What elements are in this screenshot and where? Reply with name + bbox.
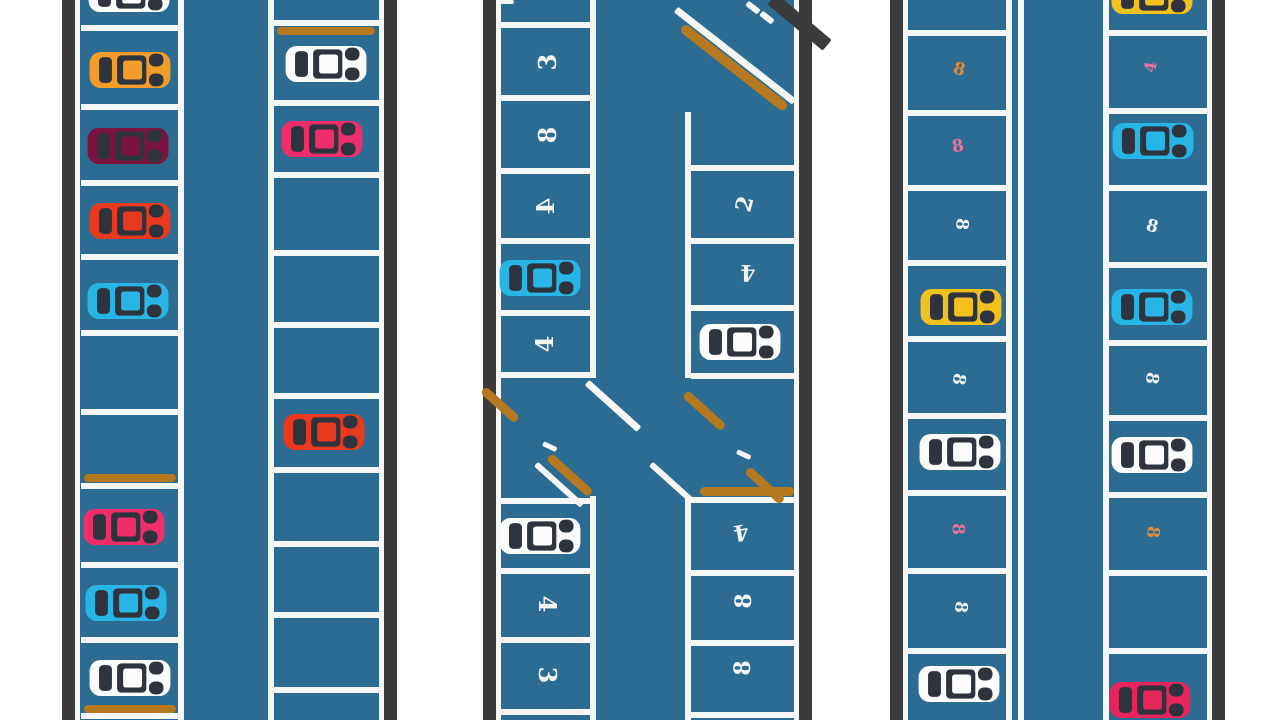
stall-number: 4 [533,336,557,353]
stall-divider-line [274,322,379,328]
curb-strip [84,705,176,713]
stall-divider-line [81,254,178,260]
stall-divider-line [908,336,1006,342]
stall-divider-line [274,250,379,256]
car-top-view [697,319,783,365]
stall-divider-line [1109,262,1207,268]
drive-lane-line [590,496,596,720]
stall-divider-line [274,100,379,106]
stall-divider-line [274,612,379,618]
stall-divider-line [908,260,1006,266]
car-top-view [497,513,583,559]
car-top-view [87,198,173,244]
stall-divider-line [501,95,590,101]
stall-divider-line [691,165,794,171]
stall-divider-line [501,709,590,715]
car-top-view [83,580,169,626]
stall-divider-line [1109,570,1207,576]
stall-number: 8 [949,523,966,535]
car-top-view [916,661,1002,707]
road-marking [500,0,514,4]
stall-divider-line [501,168,590,174]
stall-divider-line [81,409,178,415]
section-border [384,0,397,720]
section-border [62,0,75,720]
stall-divider-line [1109,415,1207,421]
stall-number: 4 [740,261,755,283]
stall-divider-line [81,25,178,31]
stall-divider-line [274,541,379,547]
stall-divider-line [691,640,794,646]
stall-divider-line [1109,340,1207,346]
car-top-view [279,116,365,162]
car-top-view [85,123,171,169]
section-edge-line [75,0,80,720]
stall-divider-line [501,568,590,574]
section-edge-line [903,0,908,720]
stall-divider-line [274,687,379,693]
stall-number: 4 [534,198,558,215]
section-border [890,0,903,720]
stall-divider-line [274,467,379,473]
stall-number: 8 [951,600,969,613]
stall-divider-line [81,713,178,719]
curb-strip [277,27,375,35]
car-top-view [1109,432,1195,478]
stall-number: 3 [535,667,559,684]
car-top-view [86,0,172,17]
section-border [799,0,812,720]
stall-divider-line [501,637,590,643]
stall-divider-line [501,238,590,244]
stall-divider-line [691,373,794,379]
stall-divider-line [81,330,178,336]
stall-divider-line [1109,30,1207,36]
car-top-view [1107,677,1193,720]
section-edge-line [1207,0,1212,720]
car-top-view [1109,0,1195,19]
car-top-view [283,41,369,87]
drive-lane-line [685,496,691,720]
drive-lane-line [685,112,691,378]
stall-divider-line [908,30,1006,36]
curb-strip [84,474,176,482]
stall-divider-line [908,648,1006,654]
stall-number: 8 [1143,525,1161,538]
stall-divider-line [908,185,1006,191]
stall-divider-line [81,562,178,568]
stall-divider-line [274,20,379,26]
drive-lane-line [1018,0,1024,720]
stall-divider-line [691,712,794,718]
section-edge-line [794,0,799,720]
car-top-view [1110,118,1196,164]
stall-divider-line [501,310,590,316]
car-top-view [81,504,167,550]
stall-divider-line [1109,648,1207,654]
car-top-view [917,429,1003,475]
stall-number: 3 [536,54,560,71]
stall-divider-line [908,413,1006,419]
stall-divider-line [1109,492,1207,498]
stall-divider-line [81,180,178,186]
stall-divider-line [81,483,178,489]
car-top-view [87,47,173,93]
stall-divider-line [501,372,590,378]
stall-divider-line [908,490,1006,496]
drive-lane-line [590,0,596,378]
stall-number: 8 [952,217,970,230]
stall-number: 8 [536,127,560,144]
stall-divider-line [1109,108,1207,114]
parking-lot-illustration: 384443244888888884888 [0,0,1280,720]
section-border [1212,0,1225,720]
car-top-view [85,278,171,324]
section-edge-line [496,0,501,720]
car-top-view [1109,284,1195,330]
stall-divider-line [274,172,379,178]
stall-divider-line [908,110,1006,116]
drive-lane-line [178,0,184,720]
stall-divider-line [908,568,1006,574]
drive-lane-line [1006,0,1012,720]
stall-divider-line [691,570,794,576]
stall-divider-line [81,104,178,110]
car-top-view [281,409,367,455]
stall-divider-line [1109,185,1207,191]
section-border [483,0,496,720]
stall-divider-line [691,305,794,311]
stall-number: 4 [535,596,559,613]
stall-divider-line [81,637,178,643]
stall-divider-line [274,393,379,399]
car-top-view [918,284,1004,330]
stall-number: 8 [732,660,754,675]
stall-divider-line [501,22,590,28]
car-top-view [497,255,583,301]
section-edge-line [379,0,384,720]
stall-number: 8 [733,593,755,608]
car-top-view [87,655,173,701]
stall-divider-line [691,238,794,244]
